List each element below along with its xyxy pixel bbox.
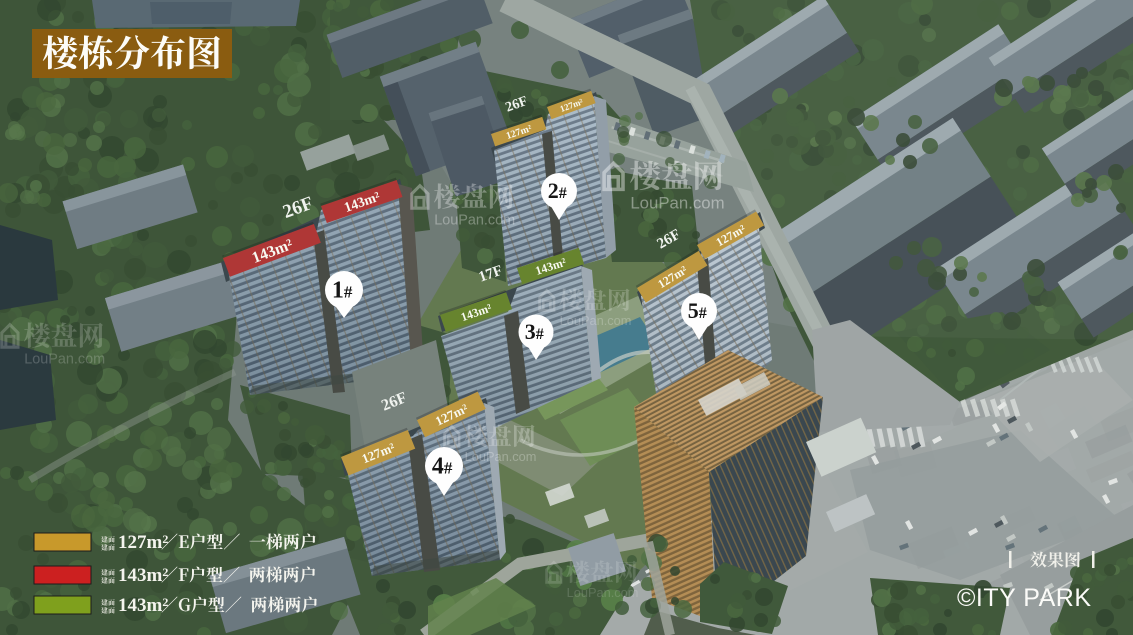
- svg-text:©ITY PARK: ©ITY PARK: [957, 584, 1092, 612]
- svg-text:LouPan.com: LouPan.com: [567, 585, 639, 600]
- svg-text:LouPan.com: LouPan.com: [465, 449, 537, 464]
- svg-text:LouPan.com: LouPan.com: [24, 351, 105, 367]
- svg-text:127m2: 127m2: [118, 532, 168, 553]
- svg-text:143m2: 143m2: [118, 595, 168, 616]
- svg-text:LouPan.com: LouPan.com: [560, 313, 632, 328]
- svg-text:LouPan.com: LouPan.com: [630, 193, 724, 212]
- svg-text:143m2: 143m2: [118, 565, 168, 586]
- svg-text:LouPan.com: LouPan.com: [434, 212, 515, 228]
